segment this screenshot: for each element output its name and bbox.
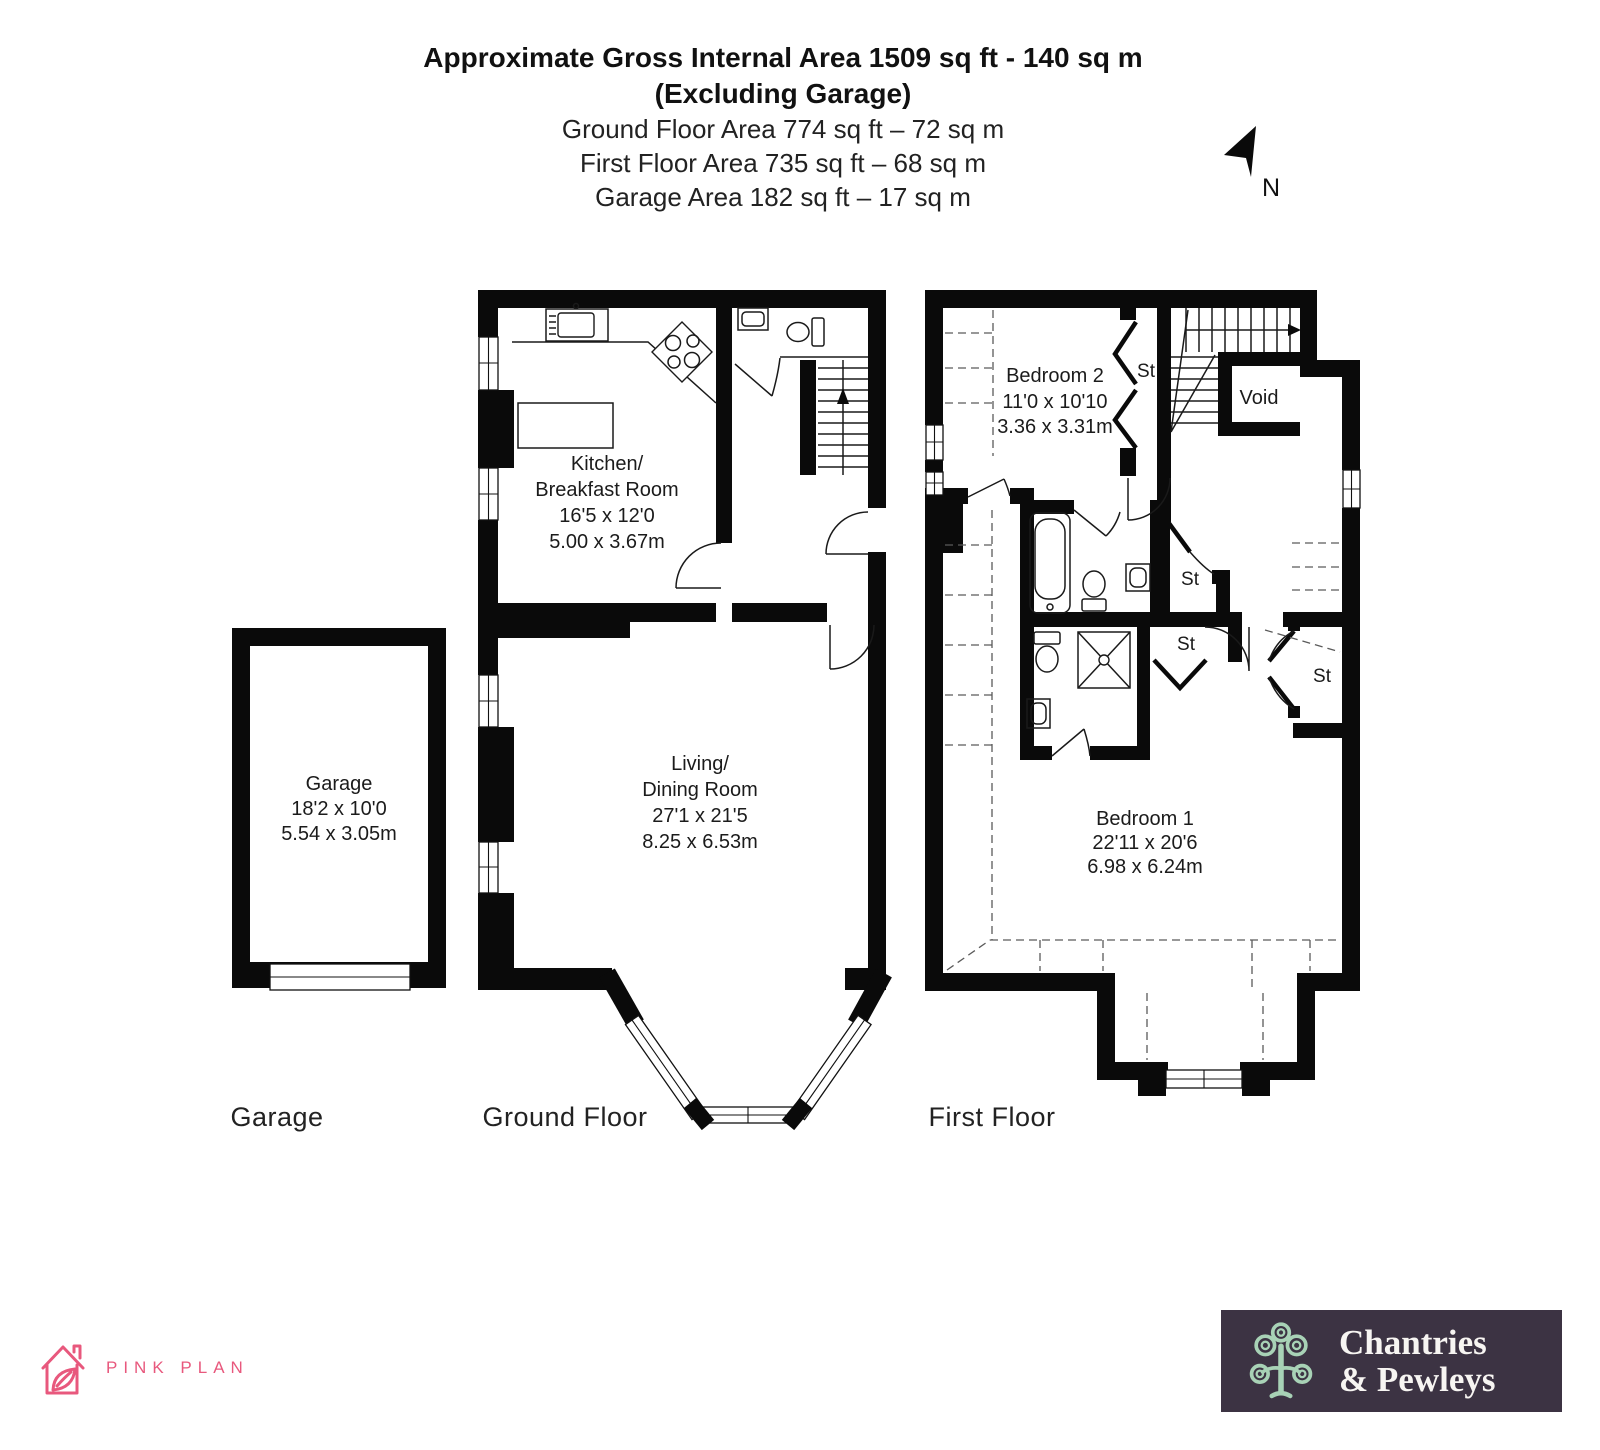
bedroom2-name: Bedroom 2 — [1006, 365, 1104, 387]
plan-ground-floor: Kitchen/ Breakfast Room 16'5 x 12'0 5.00… — [470, 282, 900, 1140]
bedroom1-metric: 6.98 x 6.24m — [1087, 856, 1203, 878]
garage-room-name: Garage — [306, 773, 373, 795]
pink-plan-logo: PINK PLAN — [36, 1338, 249, 1398]
header-ground-floor-area: Ground Floor Area 774 sq ft – 72 sq m — [0, 112, 1566, 146]
first-floor-walls — [925, 290, 1360, 1096]
plan-garage: Garage 18'2 x 10'0 5.54 x 3.05m — [225, 615, 455, 1000]
bedroom1-imperial: 22'11 x 20'6 — [1092, 832, 1197, 854]
agency-logo: Chantries & Pewleys — [1221, 1310, 1562, 1412]
header: Approximate Gross Internal Area 1509 sq … — [0, 40, 1566, 214]
storage-label-1: St — [1137, 361, 1156, 382]
kitchen-imperial: 16'5 x 12'0 — [559, 505, 655, 527]
garage-room-metric: 5.54 x 3.05m — [281, 823, 397, 845]
living-name-line1: Living/ — [671, 753, 729, 775]
bay-window — [607, 973, 884, 1125]
bedroom1-name: Bedroom 1 — [1096, 808, 1194, 830]
ground-floor-walls — [478, 290, 886, 990]
storage-label-3: St — [1177, 634, 1196, 655]
caption-ground-floor: Ground Floor — [482, 1102, 647, 1133]
living-imperial: 27'1 x 21'5 — [652, 805, 748, 827]
shower-room-fixtures — [1027, 632, 1130, 728]
plan-first-floor: Bedroom 2 11'0 x 10'10 3.36 x 3.31m St V… — [918, 282, 1370, 1104]
north-label: N — [1262, 174, 1280, 202]
bathroom-fixtures — [1030, 513, 1150, 613]
storage-label-2: St — [1181, 569, 1200, 590]
header-first-floor-area: First Floor Area 735 sq ft – 68 sq m — [0, 146, 1566, 180]
agency-name-line1: Chantries — [1339, 1324, 1495, 1361]
hob — [652, 322, 712, 382]
floorplan-page: Approximate Gross Internal Area 1509 sq … — [0, 0, 1600, 1450]
header-garage-area: Garage Area 182 sq ft – 17 sq m — [0, 180, 1566, 214]
storage-label-4: St — [1313, 666, 1332, 687]
stairs-direction-arrow — [1288, 324, 1301, 336]
living-name-line2: Dining Room — [642, 779, 758, 801]
header-title-line2: (Excluding Garage) — [0, 76, 1566, 112]
kitchen-metric: 5.00 x 3.67m — [549, 531, 665, 553]
caption-garage: Garage — [230, 1102, 323, 1133]
agency-tree-icon — [1235, 1315, 1327, 1407]
north-arrow-icon: N — [1195, 112, 1305, 212]
void-label: Void — [1240, 387, 1279, 409]
garage-room-labels: Garage 18'2 x 10'0 5.54 x 3.05m — [281, 773, 397, 845]
caption-first-floor: First Floor — [929, 1102, 1056, 1133]
kitchen-fixtures — [512, 304, 716, 449]
bedroom2-metric: 3.36 x 3.31m — [997, 416, 1113, 438]
pink-plan-brand-text: PINK PLAN — [106, 1358, 249, 1378]
garage-door — [270, 964, 410, 990]
bedroom2-imperial: 11'0 x 10'10 — [1002, 391, 1107, 413]
kitchen-name-line1: Kitchen/ — [571, 453, 644, 475]
garage-room-imperial: 18'2 x 10'0 — [291, 798, 387, 820]
living-metric: 8.25 x 6.53m — [642, 831, 758, 853]
ground-floor-doors — [676, 358, 874, 669]
wc-fixtures — [738, 308, 824, 346]
north-arrow-shape — [1224, 126, 1256, 177]
pink-plan-house-icon — [36, 1338, 90, 1398]
ground-floor-stairs — [780, 357, 868, 475]
kitchen-name-line2: Breakfast Room — [535, 479, 678, 501]
agency-name-line2: & Pewleys — [1339, 1361, 1495, 1398]
header-title-line1: Approximate Gross Internal Area 1509 sq … — [0, 40, 1566, 76]
agency-name: Chantries & Pewleys — [1339, 1324, 1495, 1398]
